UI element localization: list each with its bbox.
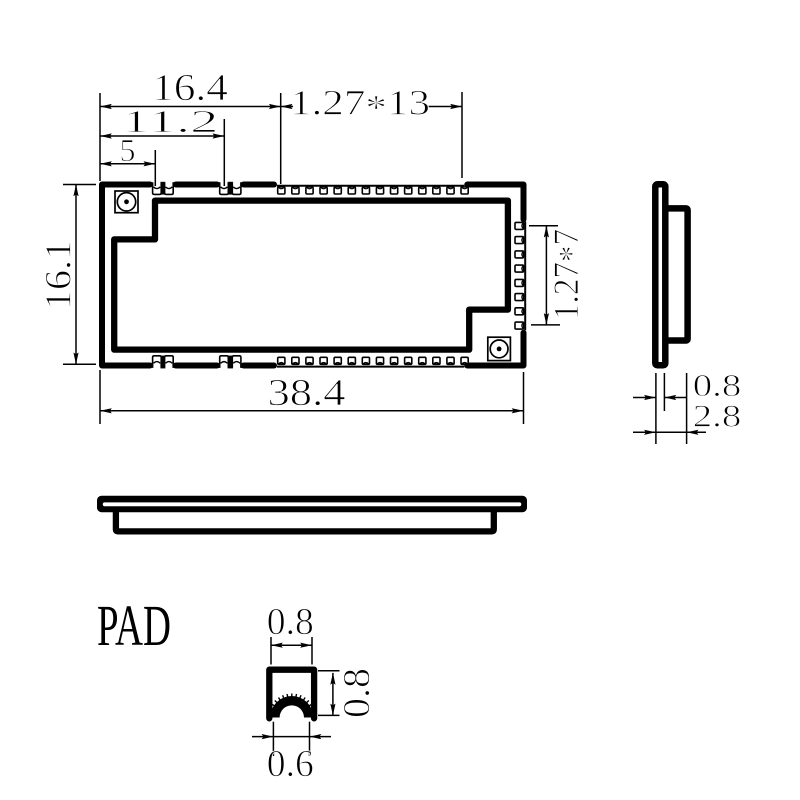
svg-text:16.1: 16.1 [38,240,79,310]
svg-text:0.8: 0.8 [336,668,378,718]
svg-text:0.6: 0.6 [267,743,314,785]
svg-text:38.4: 38.4 [268,372,346,414]
svg-text:1.27*13: 1.27*13 [290,83,430,128]
svg-text:5: 5 [120,132,136,168]
svg-text:11.2: 11.2 [122,103,219,139]
svg-text:1.27*7: 1.27*7 [546,229,591,320]
svg-text:PAD: PAD [97,593,171,658]
svg-text:2.8: 2.8 [693,398,742,434]
svg-text:0.8: 0.8 [267,601,314,643]
